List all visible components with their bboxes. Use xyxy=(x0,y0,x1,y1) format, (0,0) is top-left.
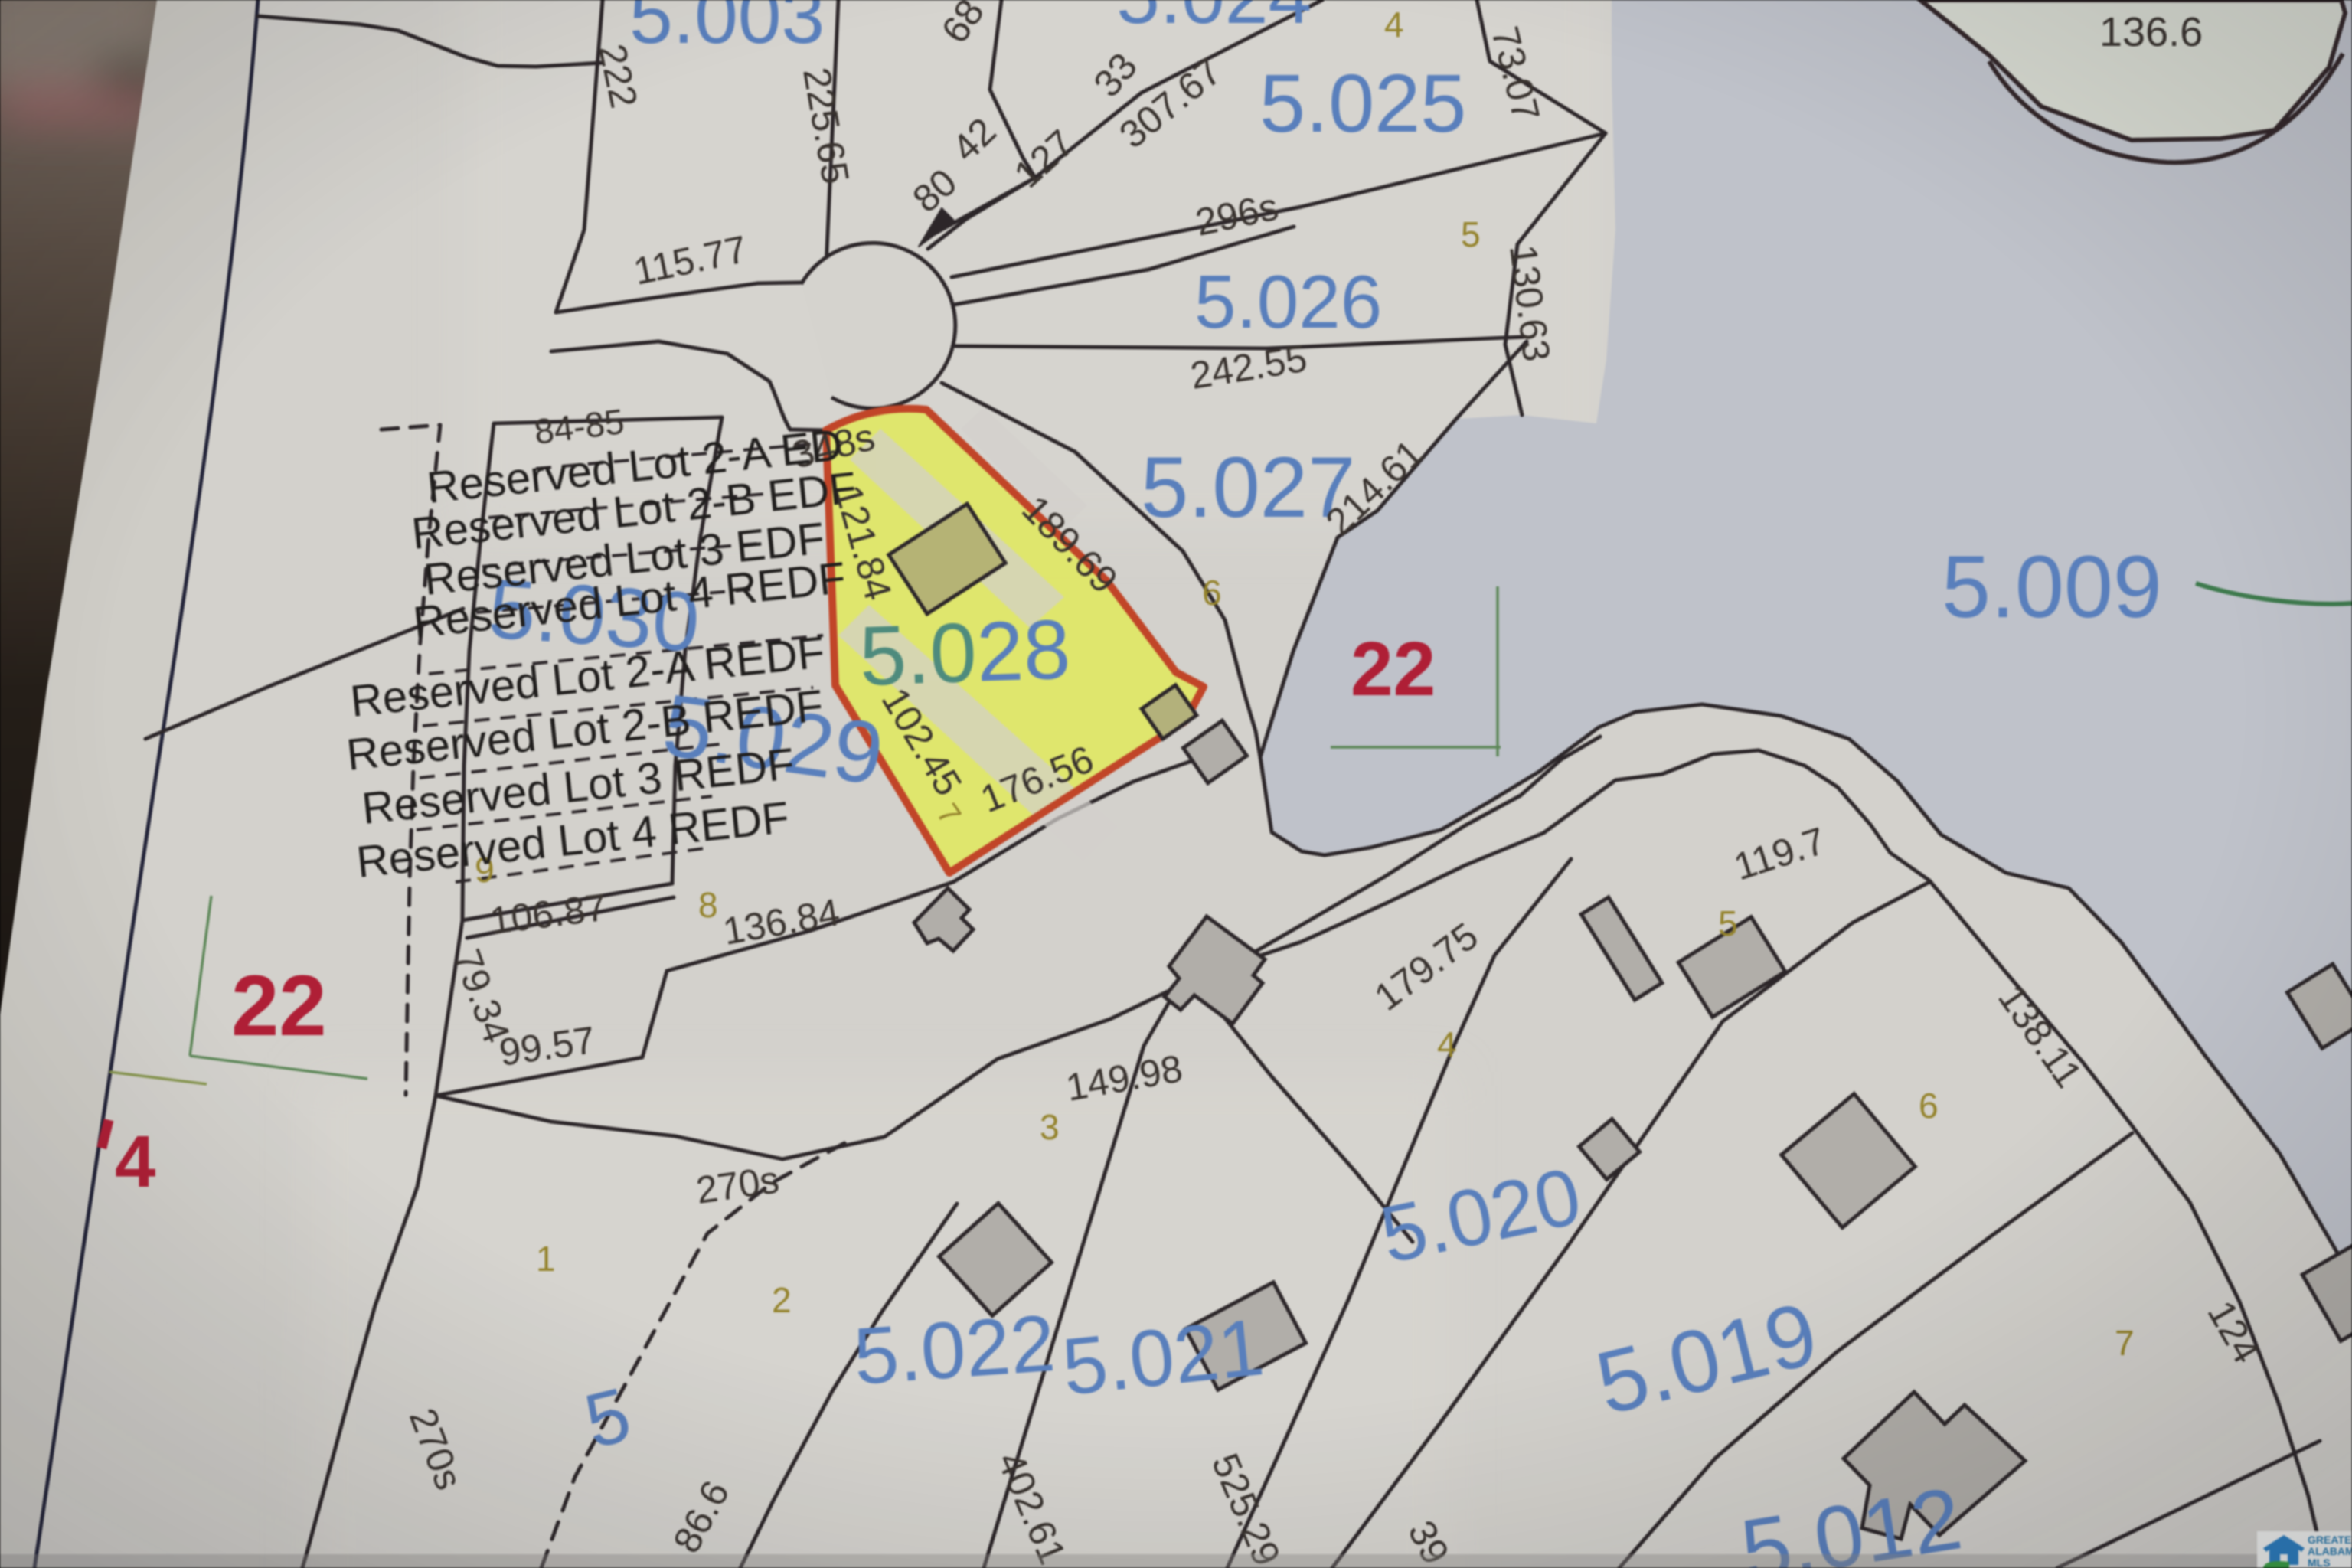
svg-text:GREATER: GREATER xyxy=(2308,1534,2352,1546)
svg-text:MLS: MLS xyxy=(2308,1557,2331,1568)
svg-text:ALABAMA: ALABAMA xyxy=(2308,1545,2352,1557)
